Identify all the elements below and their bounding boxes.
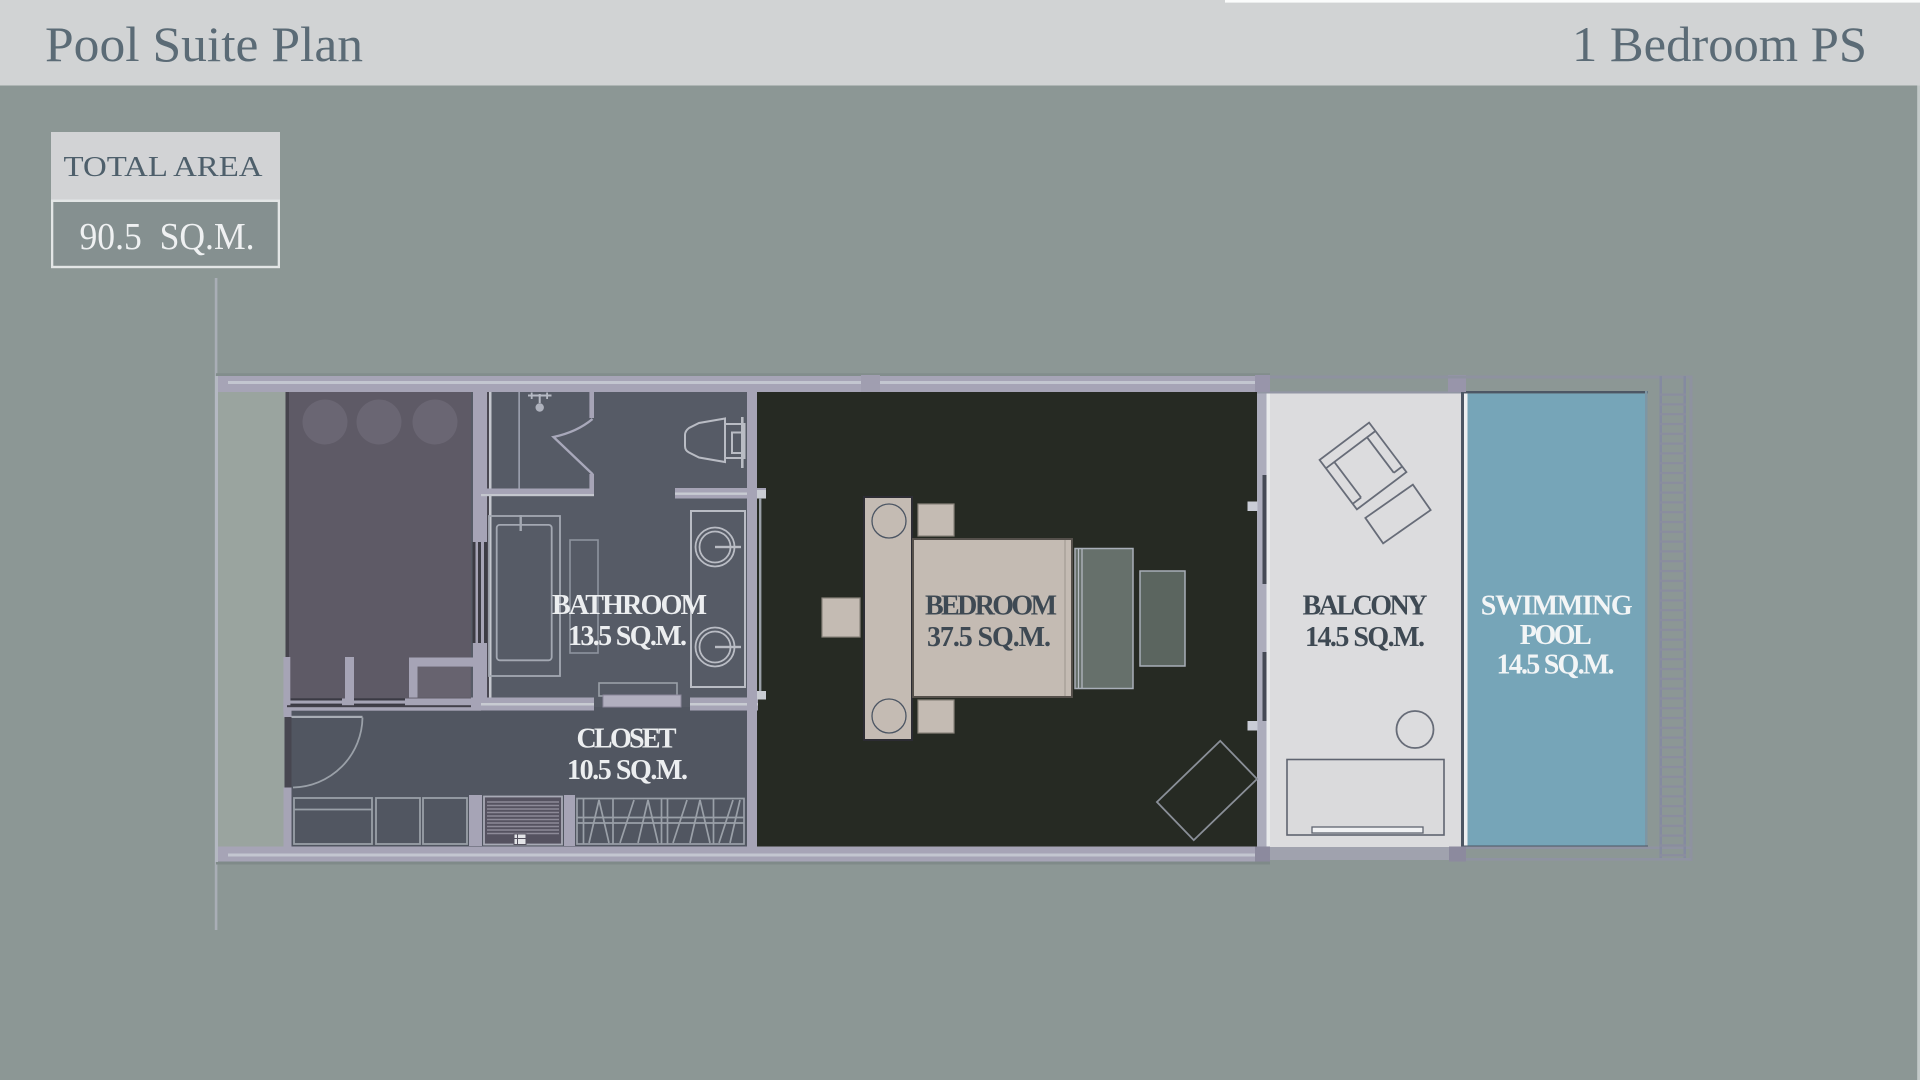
svg-text:37.5 SQ.M.: 37.5 SQ.M. <box>927 622 1051 653</box>
svg-text:Pool Suite Plan: Pool Suite Plan <box>45 16 363 72</box>
svg-text:BALCONY: BALCONY <box>1303 591 1428 622</box>
svg-text:BEDROOM: BEDROOM <box>925 591 1057 622</box>
svg-text:10.5 SQ.M.: 10.5 SQ.M. <box>567 755 688 786</box>
svg-text:13.5 SQ.M.: 13.5 SQ.M. <box>568 621 687 652</box>
svg-text:CLOSET: CLOSET <box>577 724 677 755</box>
svg-text:TOTAL AREA: TOTAL AREA <box>64 151 263 183</box>
svg-text:90.5 SQ.M.: 90.5 SQ.M. <box>80 216 255 258</box>
svg-text:14.5 SQ.M.: 14.5 SQ.M. <box>1305 622 1425 653</box>
svg-text:SWIMMING: SWIMMING <box>1481 591 1633 622</box>
svg-text:POOL: POOL <box>1520 620 1592 651</box>
svg-text:BATHROOM: BATHROOM <box>552 590 707 621</box>
svg-text:1 Bedroom PS: 1 Bedroom PS <box>1572 16 1867 72</box>
svg-text:14.5 SQ.M.: 14.5 SQ.M. <box>1497 650 1615 681</box>
